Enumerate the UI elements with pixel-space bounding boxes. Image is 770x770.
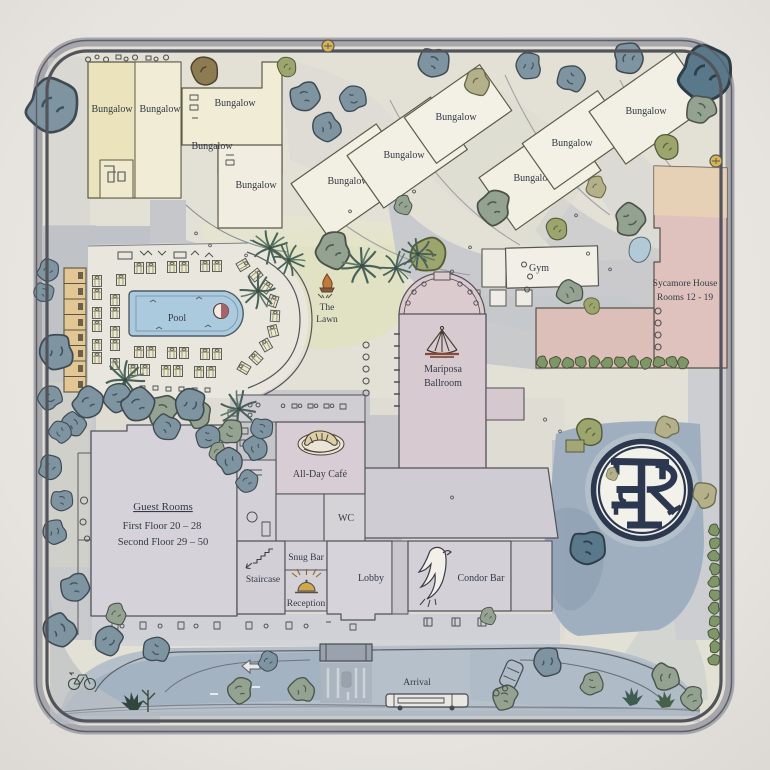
svg-text:Bungalow: Bungalow [191, 141, 233, 152]
svg-text:Arrival: Arrival [403, 678, 431, 688]
svg-text:Bungalow: Bungalow [235, 180, 277, 191]
svg-text:Bungalow: Bungalow [435, 112, 477, 123]
svg-text:Condor Bar: Condor Bar [458, 573, 506, 584]
svg-text:Staircase: Staircase [246, 575, 280, 585]
svg-text:Reception: Reception [287, 599, 326, 609]
svg-text:Bungalow: Bungalow [551, 138, 593, 149]
svg-text:Bungalow: Bungalow [139, 104, 181, 115]
svg-text:Lawn: Lawn [316, 315, 338, 325]
svg-text:Bungalow: Bungalow [625, 106, 667, 117]
svg-text:Mariposa: Mariposa [424, 364, 462, 375]
svg-text:Snug Bar: Snug Bar [288, 553, 324, 563]
svg-text:Ballroom: Ballroom [424, 378, 462, 389]
svg-text:Second Floor 29 – 50: Second Floor 29 – 50 [118, 537, 208, 548]
svg-text:Guest Rooms: Guest Rooms [133, 501, 193, 513]
svg-text:Pool: Pool [168, 313, 187, 324]
svg-text:WC: WC [338, 513, 354, 524]
svg-text:First Floor 20 – 28: First Floor 20 – 28 [123, 521, 202, 532]
svg-text:Lobby: Lobby [358, 573, 384, 584]
svg-text:The: The [320, 303, 335, 313]
svg-text:Bungalow: Bungalow [383, 150, 425, 161]
svg-text:Rooms 12 - 19: Rooms 12 - 19 [657, 293, 713, 303]
svg-text:Sycamore House: Sycamore House [653, 279, 718, 289]
svg-text:All-Day Café: All-Day Café [293, 469, 348, 480]
svg-text:Bungalow: Bungalow [91, 104, 133, 115]
svg-text:Bungalow: Bungalow [214, 98, 256, 109]
svg-text:Gym: Gym [529, 263, 549, 274]
